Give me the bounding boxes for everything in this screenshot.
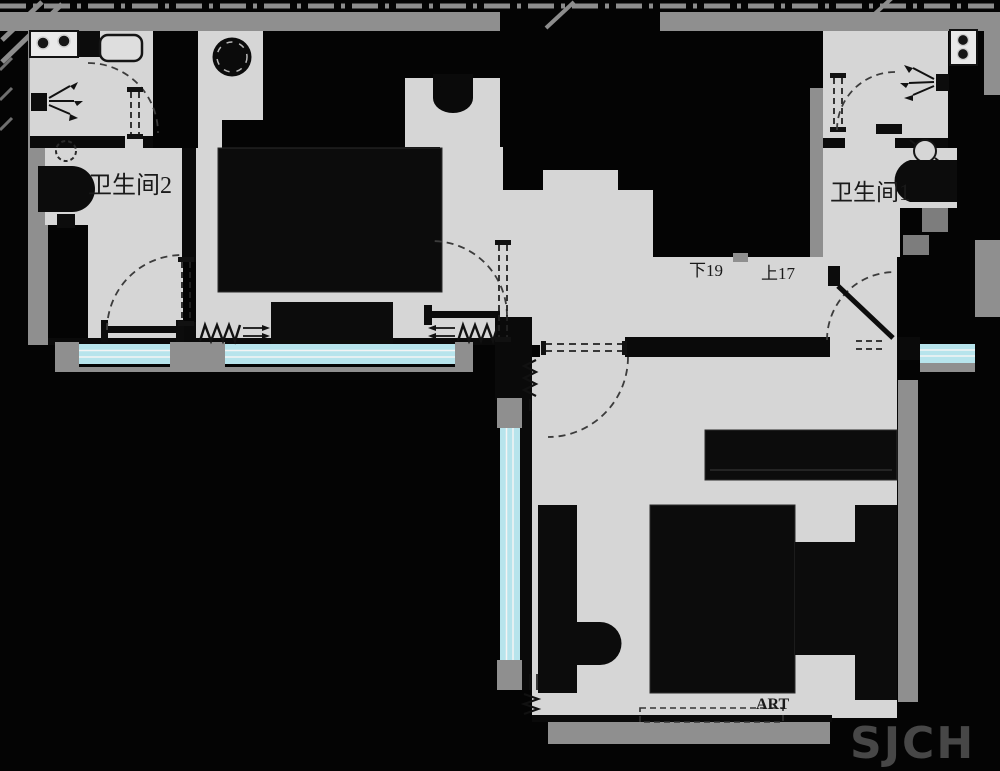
window-west	[500, 428, 520, 660]
window-frame-right	[455, 342, 473, 367]
wall-hatch-left-edge	[0, 58, 12, 130]
sliding-door-end-cap	[495, 337, 511, 342]
hall-living-wall	[625, 337, 830, 357]
door-hinge-mark	[424, 305, 432, 325]
bed	[218, 148, 442, 292]
sliding-door-icon	[182, 262, 190, 322]
bathroom-cabinet	[922, 208, 948, 232]
tv-cabinet	[271, 302, 393, 344]
toilet-tank	[38, 166, 48, 212]
sliding-door-end-cap	[830, 73, 846, 78]
sliding-door-end-cap	[830, 127, 846, 132]
sliding-door-end-cap	[622, 341, 627, 355]
counter-end-cabinet	[78, 31, 100, 57]
art-label: ART	[756, 696, 790, 713]
side-cabinet	[855, 505, 897, 542]
kitchen-fixtures	[213, 38, 252, 77]
desk	[538, 505, 577, 693]
right-exterior-wall-mid	[975, 240, 1000, 317]
west-window-cap-top	[497, 398, 522, 428]
bathroom2-right-wall-upper	[182, 148, 196, 262]
window-sill-line	[55, 367, 473, 372]
basin-icon	[37, 37, 49, 49]
window-south-1	[79, 344, 170, 364]
sliding-door-end-cap	[495, 240, 511, 245]
top-wall-left-segment	[0, 12, 500, 31]
right-exterior-wall-top	[984, 12, 1000, 95]
stairs-down-label: 下19	[689, 261, 723, 280]
west-window-cap-bottom	[497, 660, 522, 690]
sofa	[705, 430, 897, 480]
door-leaf	[107, 326, 182, 333]
basin-icon	[958, 35, 969, 46]
hall-top-bump-floor	[543, 170, 618, 192]
entry-door-post	[897, 337, 920, 360]
bathroom1-vestibule-floor	[823, 208, 900, 257]
drain-box	[57, 214, 75, 228]
window-mullion	[170, 342, 225, 367]
shower-head-icon	[31, 93, 47, 111]
stair-nosing-mark	[733, 253, 748, 262]
floor-plan-canvas: 卫生间2 卫生间1 下19 上17 ART SJCH	[0, 0, 1000, 771]
living-room-south-wall	[532, 715, 832, 722]
basin-icon	[958, 49, 969, 60]
balcony-slab	[548, 722, 830, 744]
dining-table	[650, 505, 795, 693]
shower-head-icon	[936, 74, 949, 91]
room-label-bathroom2: 卫生间2	[88, 172, 172, 199]
hall-u-notch-curve	[433, 83, 473, 113]
exhaust-fan-icon	[914, 140, 936, 162]
bathroom-cabinet	[903, 235, 929, 255]
entry-door-end-cap	[828, 266, 840, 286]
window-entry-right-sill	[920, 363, 975, 372]
west-window-inner-wall	[520, 398, 532, 690]
bathroom1-door-opening	[845, 138, 895, 148]
window-south-2	[225, 344, 455, 364]
bathtub-icon	[100, 35, 142, 61]
window-frame-left	[55, 342, 79, 367]
storage-block	[795, 542, 897, 655]
desk-chair	[577, 622, 622, 665]
sliding-door-end-cap	[127, 134, 143, 139]
room-label-bathroom1: 卫生间1	[830, 180, 911, 205]
top-wall-right-segment	[660, 12, 1000, 31]
sliding-door-end-cap	[178, 321, 194, 326]
basin-icon	[58, 35, 70, 47]
floor-plan: 卫生间2 卫生间1 下19 上17 ART SJCH	[0, 0, 1000, 771]
living-room-right-wall	[898, 380, 918, 702]
watermark: SJCH	[850, 718, 975, 769]
stairs-up-label: 上17	[761, 264, 795, 283]
door-leaf	[876, 124, 902, 134]
corner-cabinet	[855, 655, 897, 700]
window-entry-right	[920, 344, 975, 363]
sliding-door-end-cap	[541, 341, 546, 355]
sliding-door-end-cap	[178, 257, 194, 262]
door-leaf	[432, 311, 500, 318]
sliding-door-end-cap	[127, 87, 143, 92]
entry-threshold-floor	[830, 345, 897, 357]
washing-machine-icon	[213, 38, 252, 77]
